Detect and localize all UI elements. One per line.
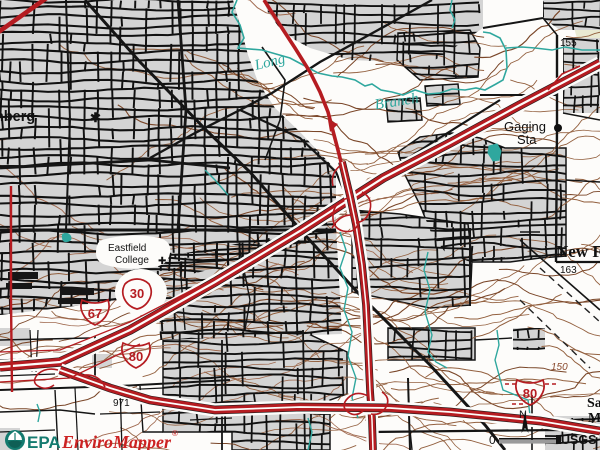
svg-text:EnviroMapper: EnviroMapper — [61, 432, 172, 450]
svg-text:30: 30 — [130, 286, 144, 301]
svg-text:✱: ✱ — [90, 110, 101, 125]
svg-text:Me: Me — [588, 411, 600, 426]
svg-text:80: 80 — [523, 386, 537, 401]
svg-text:150: 150 — [551, 362, 568, 373]
svg-text:College: College — [115, 255, 149, 266]
svg-text:®: ® — [172, 429, 178, 438]
svg-text:155: 155 — [560, 38, 577, 49]
svg-text:Sta: Sta — [517, 132, 537, 147]
svg-text:USGS: USGS — [561, 433, 596, 447]
svg-text:Sa: Sa — [587, 396, 600, 411]
svg-text:0: 0 — [489, 433, 496, 447]
svg-text:✚: ✚ — [158, 256, 166, 267]
svg-text:EPA: EPA — [27, 433, 61, 450]
svg-text:himberg: himberg — [0, 109, 35, 125]
svg-text:163: 163 — [560, 265, 577, 276]
svg-text:80: 80 — [129, 349, 143, 364]
svg-text:Eastfield: Eastfield — [108, 243, 146, 254]
svg-text:971: 971 — [113, 398, 130, 409]
svg-text:67: 67 — [88, 306, 102, 321]
svg-text:New F: New F — [556, 242, 600, 261]
